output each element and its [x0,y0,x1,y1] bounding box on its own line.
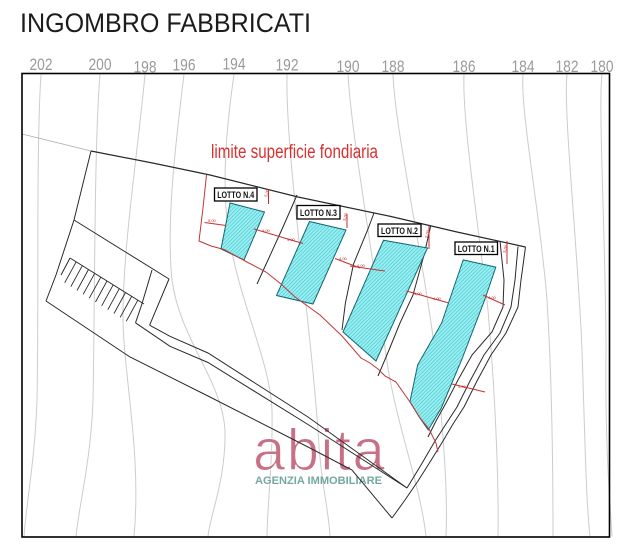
svg-text:LOTTO N.1: LOTTO N.1 [458,244,495,254]
svg-text:4,00: 4,00 [458,384,467,389]
svg-text:4,00: 4,00 [488,295,497,300]
svg-text:LOTTO N.2: LOTTO N.2 [381,226,418,236]
svg-text:5,00: 5,00 [208,218,217,223]
svg-text:4,00: 4,00 [433,296,442,301]
svg-text:5,00: 5,00 [263,188,270,198]
svg-text:202: 202 [30,56,53,74]
svg-text:limite superficie fondiaria: limite superficie fondiaria [211,142,378,163]
svg-text:INGOMBRO FABBRICATI: INGOMBRO FABBRICATI [20,8,311,38]
svg-text:4,00: 4,00 [414,291,423,296]
svg-text:200: 200 [89,56,112,74]
svg-text:5,00: 5,00 [342,212,349,222]
svg-text:abita: abita [253,418,386,483]
svg-text:LOTTO N.4: LOTTO N.4 [217,190,254,200]
svg-text:196: 196 [173,57,196,75]
svg-text:4,00: 4,00 [262,228,271,233]
svg-text:4,00: 4,00 [357,263,366,268]
svg-text:4,00: 4,00 [287,237,296,242]
svg-text:AGENZIA IMMOBILIARE: AGENZIA IMMOBILIARE [255,475,382,487]
svg-text:LOTTO N.3: LOTTO N.3 [300,208,337,218]
svg-text:194: 194 [223,56,246,74]
svg-text:4,00: 4,00 [339,256,348,261]
svg-text:192: 192 [276,57,299,75]
svg-text:5,00: 5,00 [502,244,509,254]
